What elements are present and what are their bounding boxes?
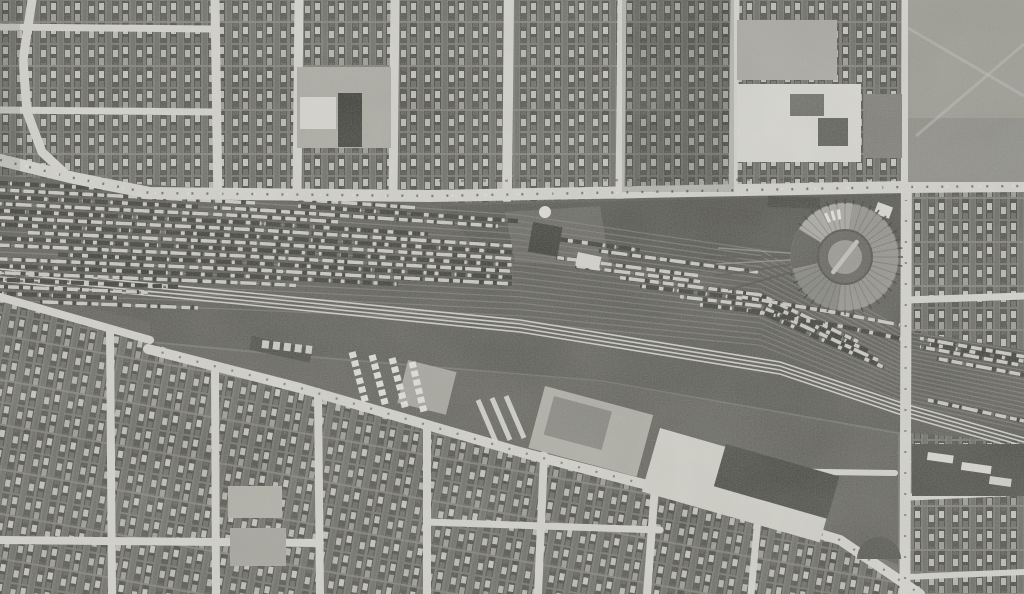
film-texture bbox=[0, 0, 1024, 594]
aerial-photograph bbox=[0, 0, 1024, 594]
aerial-photo-canvas bbox=[0, 0, 1024, 594]
